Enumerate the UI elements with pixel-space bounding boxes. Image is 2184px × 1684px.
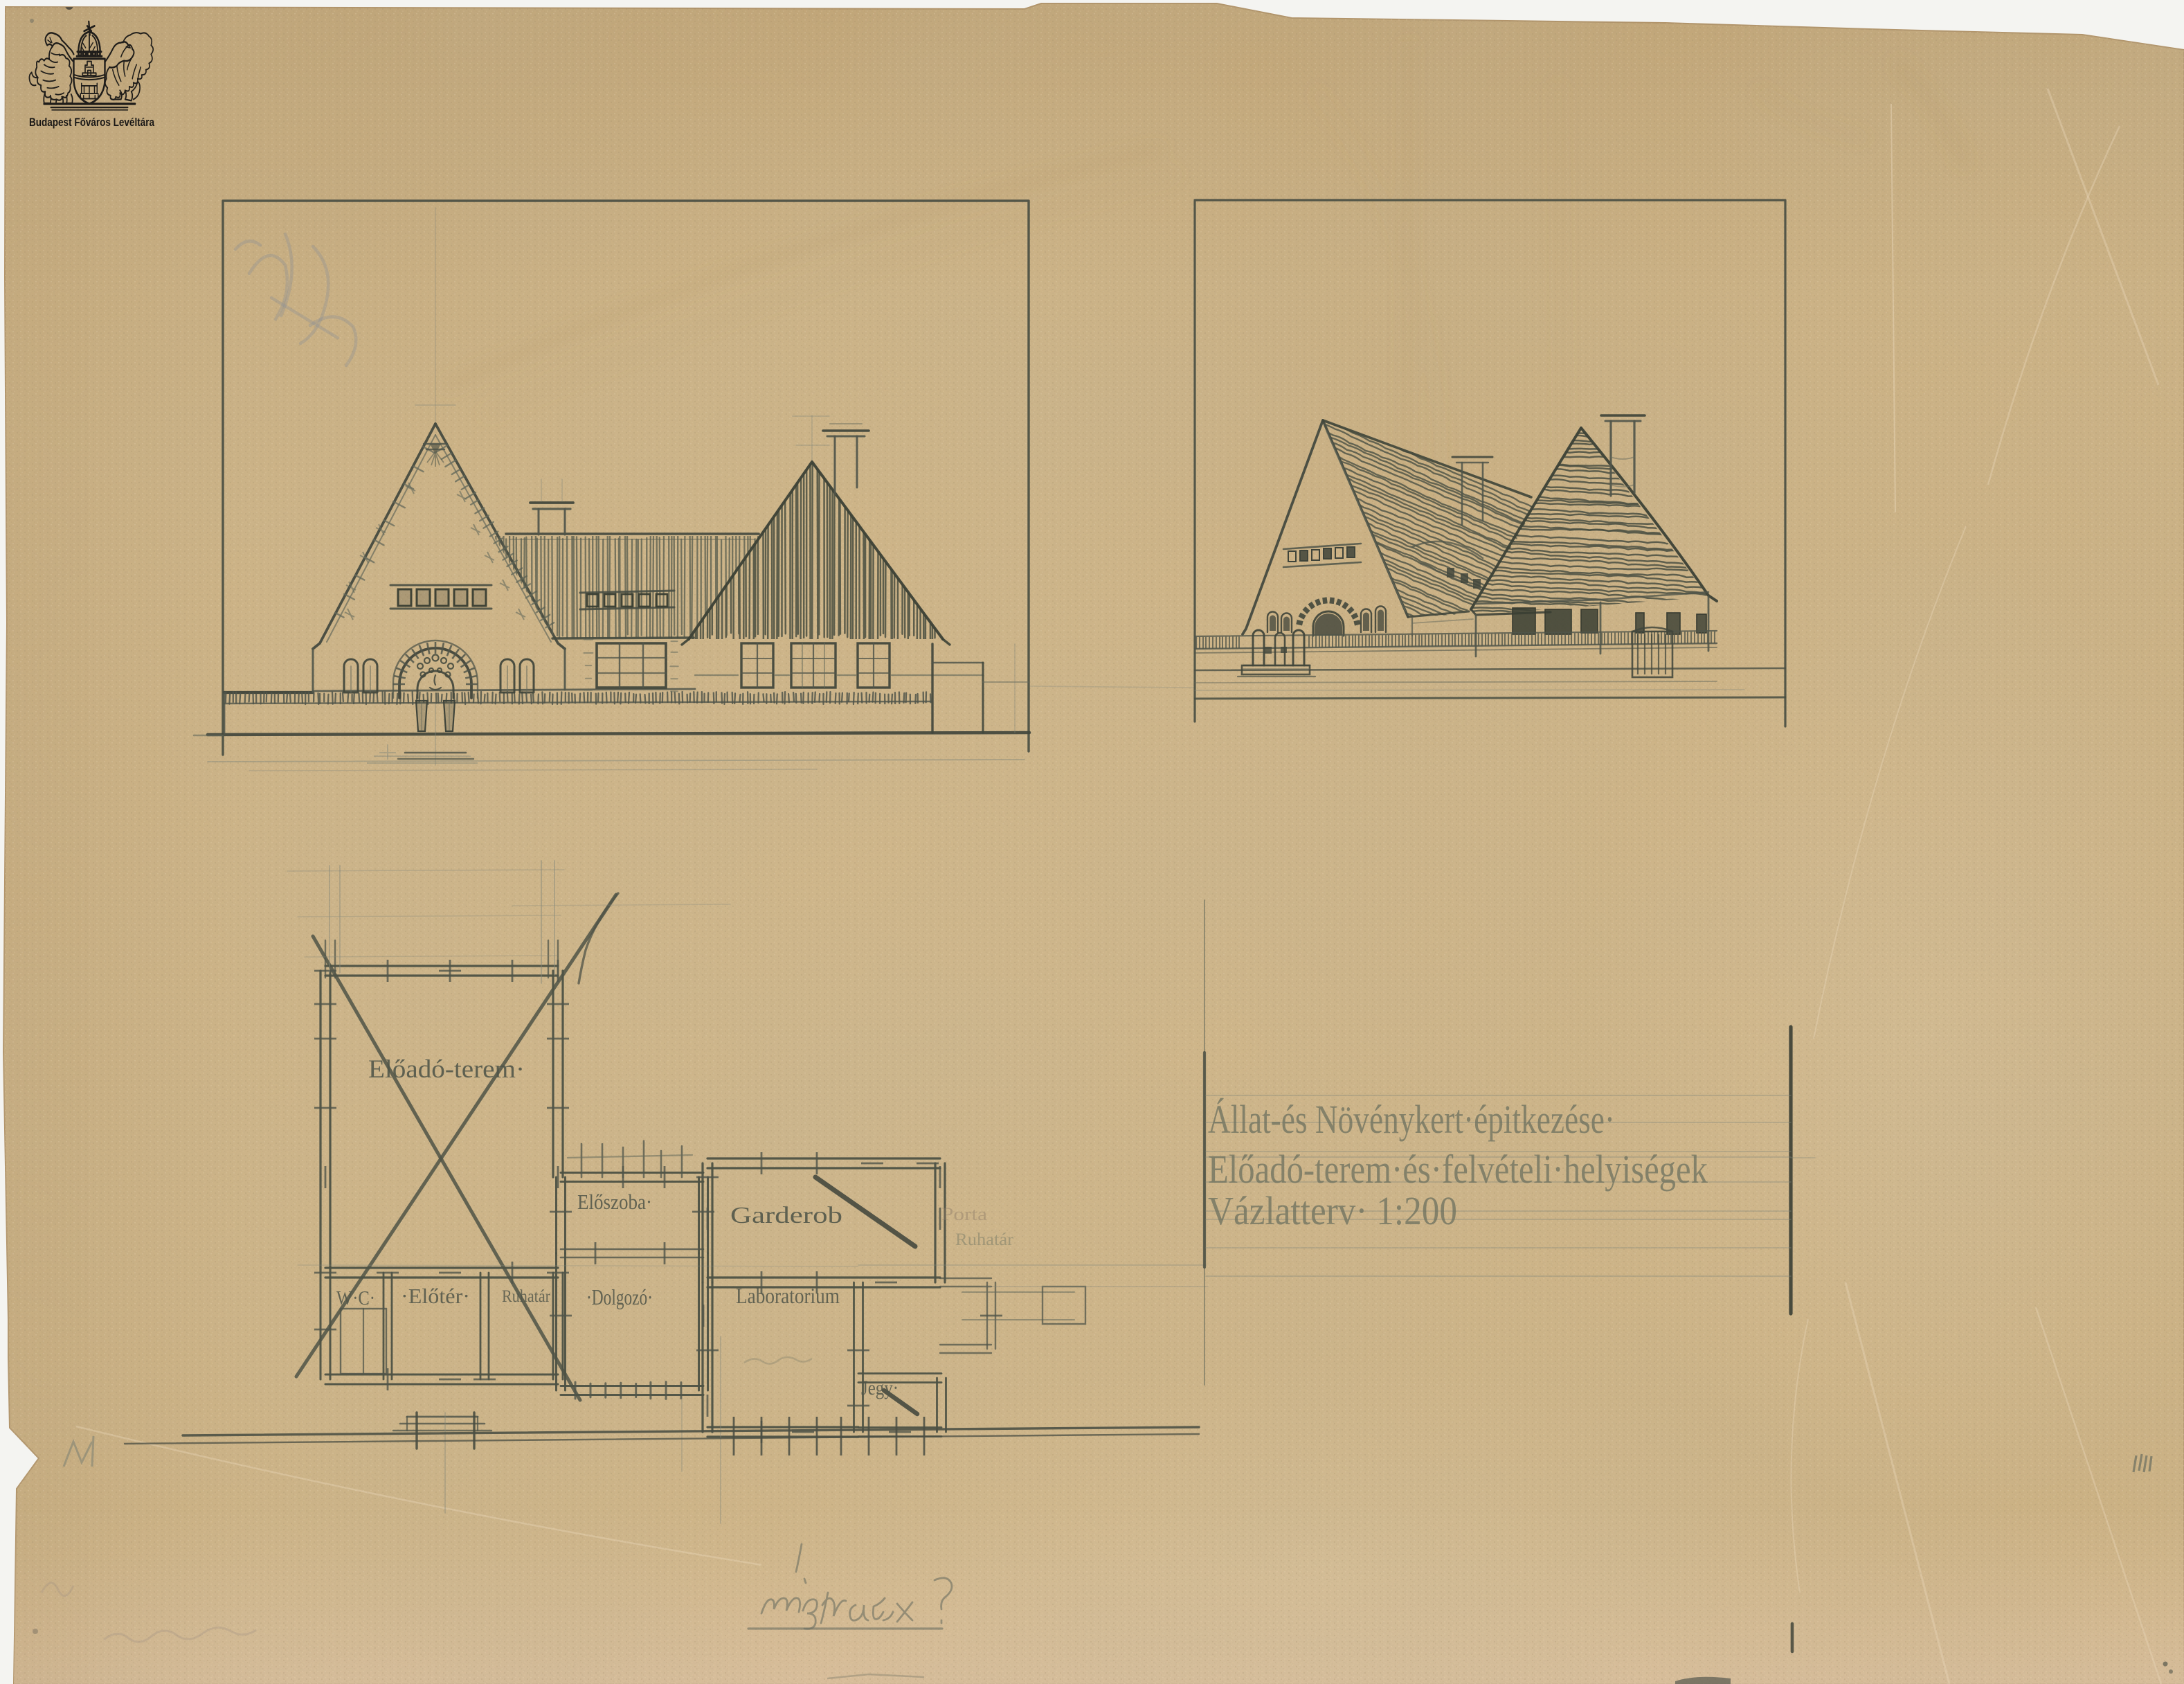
svg-text:Állat-és Növénykert·épitkezése: Állat-és Növénykert·épitkezése·	[1208, 1097, 1615, 1142]
svg-text:Budapest Főváros Levéltára: Budapest Főváros Levéltára	[29, 116, 154, 129]
svg-text:Vázlatterv· 1:200: Vázlatterv· 1:200	[1208, 1188, 1457, 1233]
svg-text:Jegy·: Jegy·	[861, 1377, 899, 1399]
svg-text:Laboratorium: Laboratorium	[736, 1283, 840, 1308]
svg-text:W·C·: W·C·	[336, 1287, 375, 1309]
svg-text:·Dolgozó·: ·Dolgozó·	[586, 1284, 653, 1309]
svg-text:·Előtér·: ·Előtér·	[401, 1284, 470, 1308]
svg-text:Előadó-terem·és·felvételi·hely: Előadó-terem·és·felvételi·helyiségek	[1208, 1147, 1708, 1192]
svg-text:Ruhatár: Ruhatár	[502, 1287, 551, 1306]
svg-text:Porta: Porta	[941, 1204, 988, 1224]
svg-text:Előszoba·: Előszoba·	[577, 1190, 652, 1214]
svg-text:Ruhatár: Ruhatár	[955, 1230, 1014, 1249]
svg-text:Előadó-terem·: Előadó-terem·	[368, 1055, 525, 1084]
svg-text:Garderob: Garderob	[730, 1203, 842, 1228]
